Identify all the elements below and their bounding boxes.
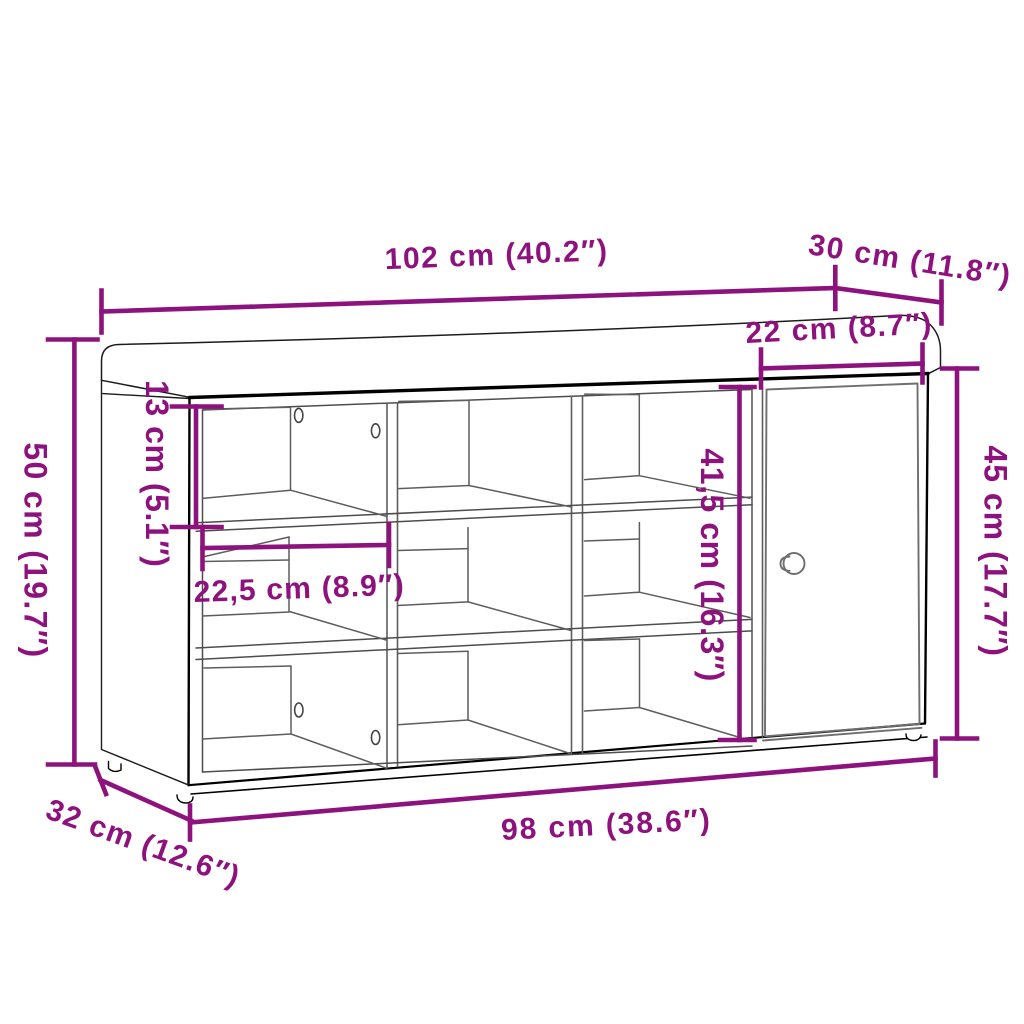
svg-text:50 cm (19.7″): 50 cm (19.7″) <box>17 442 53 658</box>
svg-text:45 cm (17.7″): 45 cm (17.7″) <box>977 445 1013 657</box>
svg-text:13 cm (5.1″): 13 cm (5.1″) <box>139 380 175 567</box>
svg-text:41,5 cm (16.3″): 41,5 cm (16.3″) <box>694 448 730 681</box>
